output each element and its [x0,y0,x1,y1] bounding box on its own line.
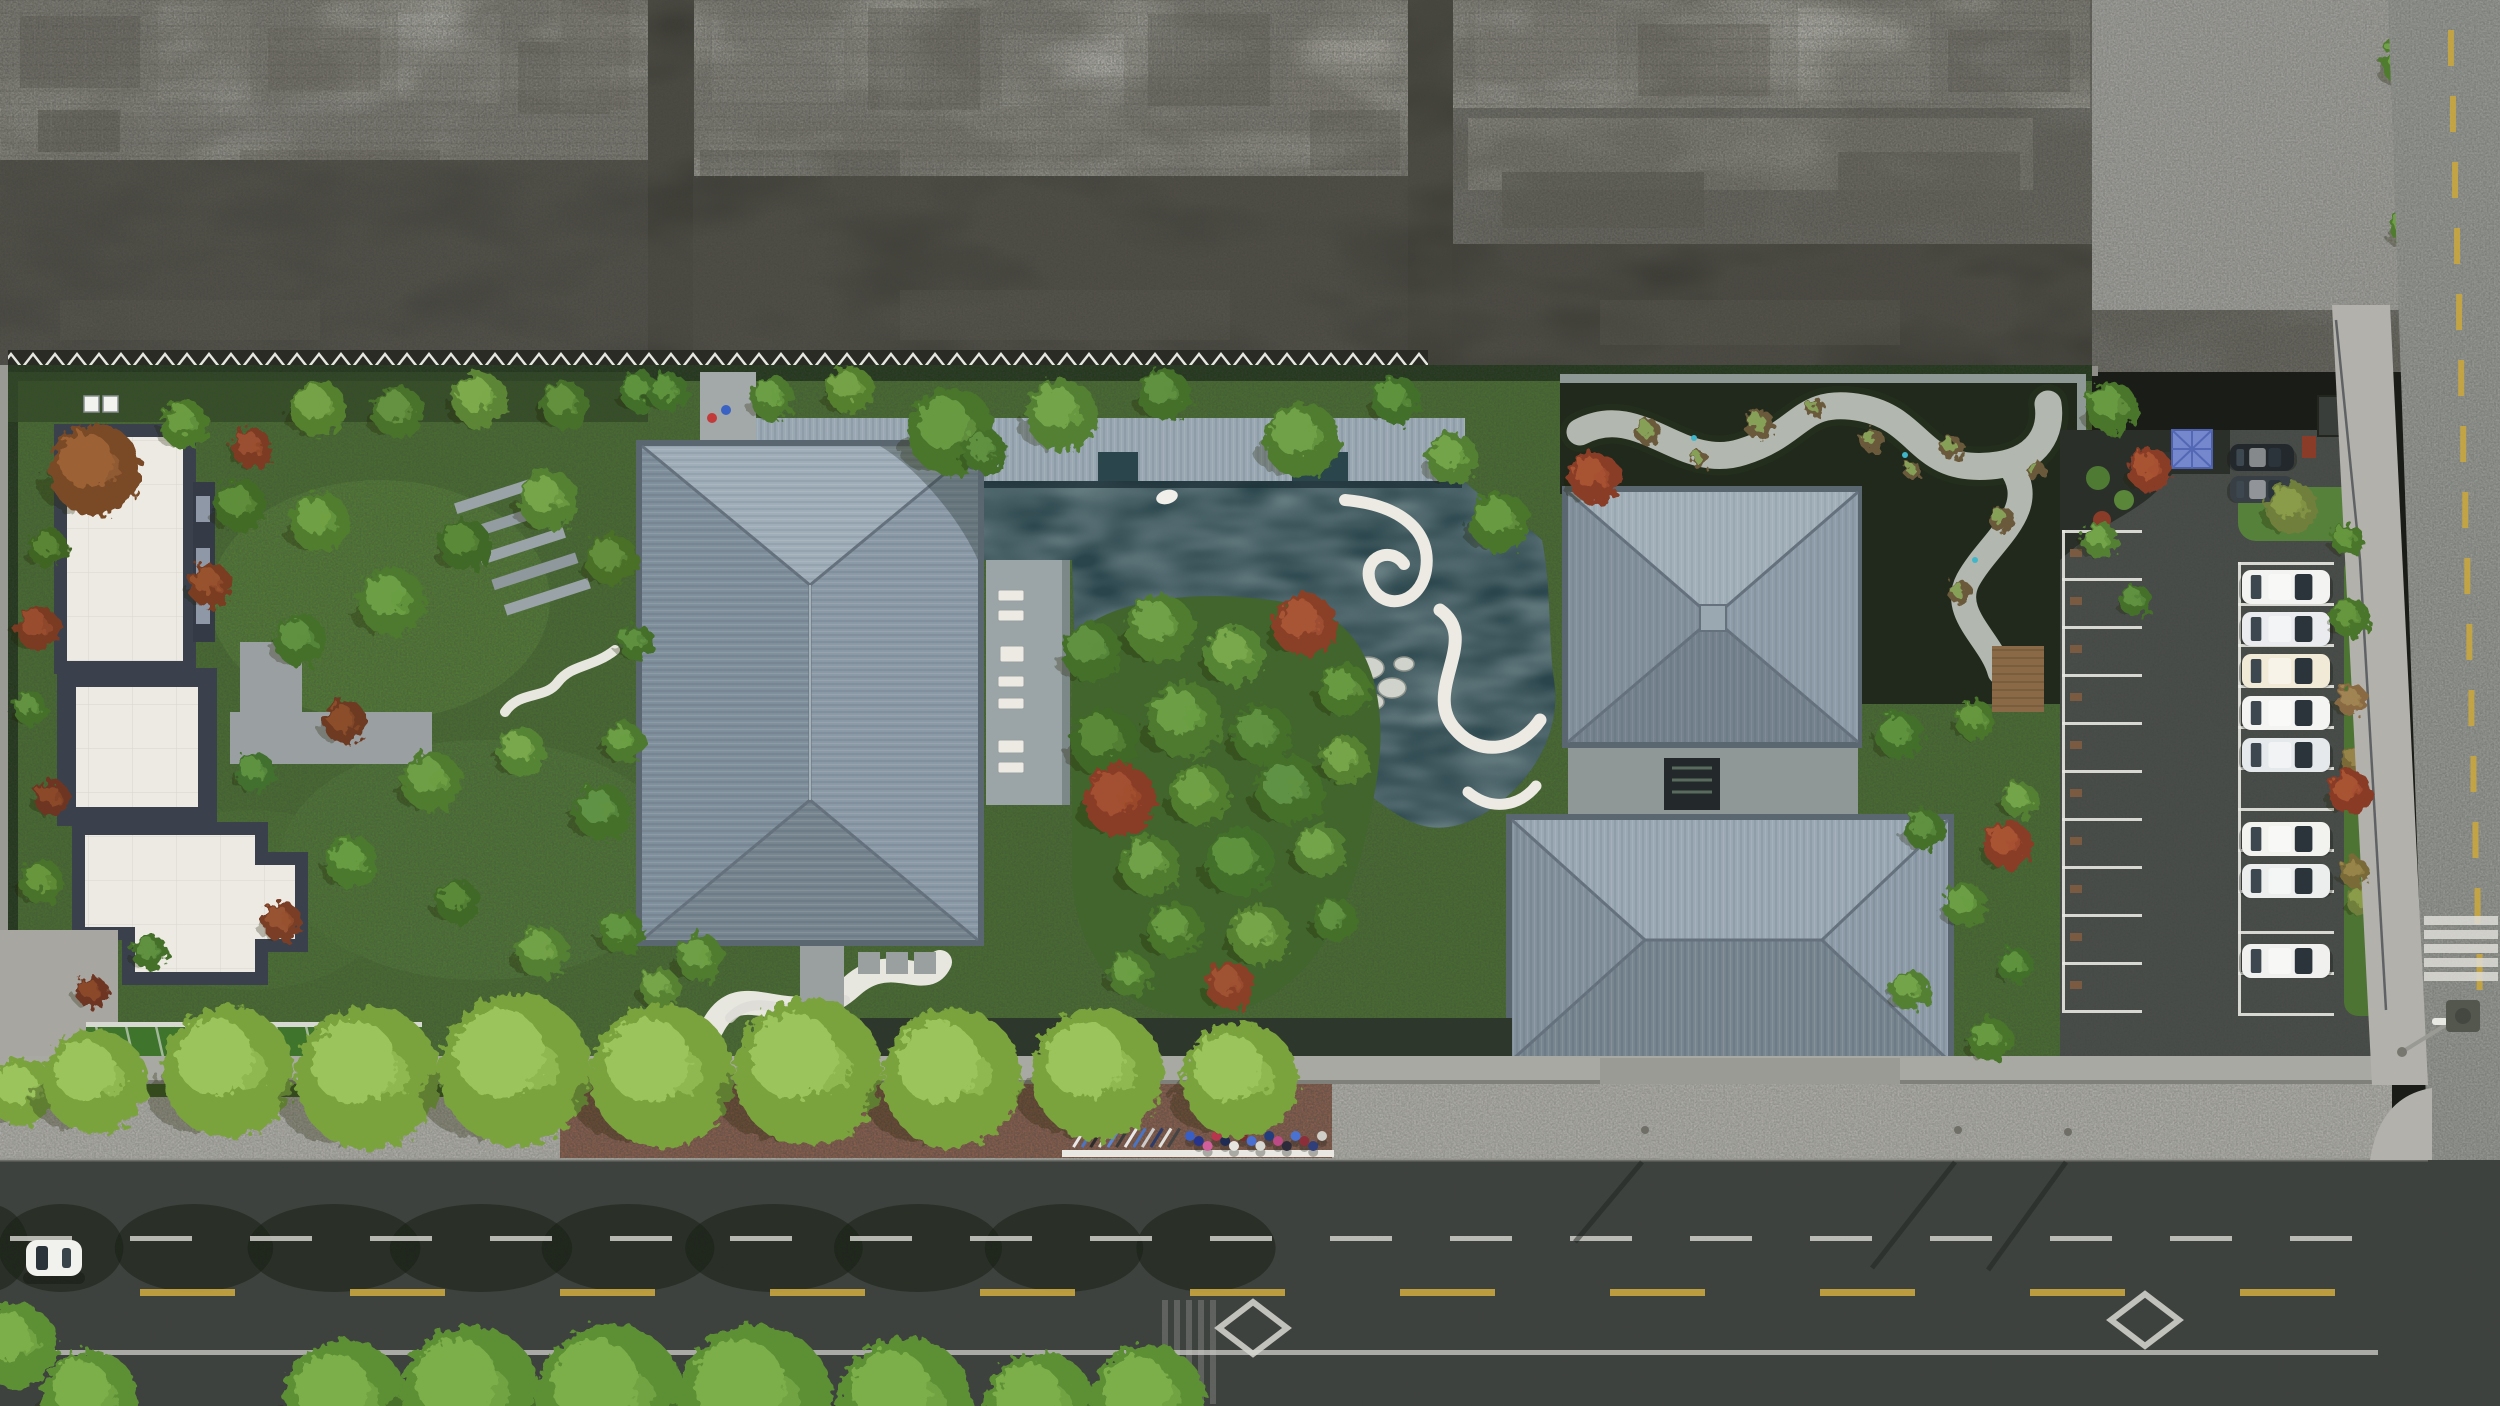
street-car-white [23,1240,85,1284]
zen-blue-accent [1972,557,1978,563]
person [721,405,731,415]
zen-tree [1940,436,1964,460]
center-dash-yellow [2458,360,2464,396]
zen-tree [1903,461,1921,479]
stall-line [2062,626,2142,629]
lane-dash-white [130,1236,192,1241]
crosswalk-stripe [2424,972,2498,981]
zen-tree [1860,428,1884,452]
zen-wall-top [1560,374,2085,383]
center-dash-yellow [1610,1289,1705,1296]
car-roof [2268,616,2291,642]
plaza-pad [914,952,936,974]
stall-line [2238,931,2334,934]
car-roof [2268,868,2291,894]
zen-tree [1805,398,1825,418]
construction-site [0,0,2500,376]
car-windshield [36,1246,48,1270]
center-dash-yellow [140,1289,235,1296]
car-roof [2249,480,2266,499]
lane-dash-white [250,1236,312,1241]
person [1185,1131,1195,1141]
lane-dash-white [1090,1236,1152,1241]
plaza-pad [886,952,908,974]
street-lamp-base [2397,1047,2407,1057]
center-dash-yellow [770,1289,865,1296]
lane-dash-white [1810,1236,1872,1241]
kiosk-red-bush [2302,436,2316,458]
crosswalk-stripe [2424,958,2498,967]
person [1229,1141,1239,1151]
boulder [1394,657,1414,671]
center-dash-yellow [980,1289,1075,1296]
pergola-notch [1098,452,1138,481]
car-windshield [2295,658,2313,684]
wheel-stop [2070,837,2082,845]
rooftop-ac-unit [84,396,99,412]
stall-line [2238,1013,2334,1016]
person [1308,1141,1318,1151]
person [1273,1136,1283,1146]
zen-tree [2025,460,2045,480]
pavilion-3-hip-roof [1506,814,1954,1084]
worn-stripe [1210,1300,1216,1404]
car-windshield [2295,868,2313,894]
tree-shadow [1136,1204,1275,1292]
car-roof [2268,658,2291,684]
boulder [1378,678,1406,698]
tree-shadow [985,1204,1143,1292]
wheel-stop [2070,885,2082,893]
deck-bench [998,610,1024,621]
crosswalk-stripe [2424,944,2498,953]
car-roof [2268,574,2291,600]
lane-dash-white [2290,1236,2352,1241]
person [1282,1141,1292,1151]
zen-tree [1948,580,1972,604]
car-body [26,1240,82,1276]
stall-line [2062,962,2142,965]
zen-tree [1989,507,2015,533]
center-dash-yellow [2448,30,2454,66]
wheel-stop [2070,597,2082,605]
tree-shadows-on-road [0,1204,1276,1292]
car-rear-glass [2236,449,2244,466]
center-dash-yellow [2452,162,2458,198]
street-lamp-head [2432,1018,2448,1025]
lane-dash-white [1210,1236,1272,1241]
car-roof [2268,948,2291,974]
car-windshield [2295,700,2313,726]
car-rear-glass [2251,659,2262,683]
stall-line [2062,818,2142,821]
lane-dash-white [490,1236,552,1241]
stall-line [2062,770,2142,773]
center-dash-yellow [2466,624,2472,660]
lane-dash-white [850,1236,912,1241]
person [1255,1141,1265,1151]
stall-line [2062,866,2142,869]
person [1194,1136,1204,1146]
lane-dash-white [730,1236,792,1241]
lane-dash-white [2170,1236,2232,1241]
center-dash-yellow [2456,294,2462,330]
tree-shadow [834,1204,1002,1292]
wheel-stop [2070,645,2082,653]
center-dash-yellow [2470,756,2476,792]
person [1264,1131,1274,1141]
car-rear-glass [2251,869,2262,893]
deck-benches [998,590,1024,773]
deck-bench [998,698,1024,709]
person [707,413,717,423]
car-windshield [2295,574,2313,600]
deck-bench [998,590,1024,601]
rooftop-ac-unit [103,396,118,412]
center-dash-yellow [2473,822,2479,858]
lamp-pole [2064,1128,2072,1136]
terrace-art-square [1664,758,1720,810]
lamp-pole [1954,1126,1962,1134]
bed-mound [2114,490,2134,510]
person [1299,1136,1309,1146]
stall-line [2238,808,2334,811]
roof-apex-cap [1700,605,1726,631]
car-windshield [2295,826,2313,852]
zen-blue-accent [1902,452,1908,458]
center-dash-yellow [2450,96,2456,132]
center-dash-yellow [350,1289,445,1296]
center-dash-yellow [2462,492,2468,528]
zen-tree [1635,419,1661,445]
deck-bench [998,740,1024,753]
car-roof [2268,826,2291,852]
pavilion-1-hip-roof [636,440,984,946]
car-rear-glass [62,1248,71,1268]
utility-box-lid [2455,1008,2471,1024]
person [1291,1131,1301,1141]
car-rear-glass [2251,701,2262,725]
wheel-stop [2070,789,2082,797]
zen-blue-accent [1691,435,1697,441]
center-dash-yellow [1400,1289,1495,1296]
plaza-pad [858,952,880,974]
wheel-stop [2070,981,2082,989]
zen-tree [1745,410,1775,440]
lane-dash-white [1930,1236,1992,1241]
stall-line [2062,914,2142,917]
pavilion-2-pyramid-roof [1562,486,1862,820]
lane-dash-white [370,1236,432,1241]
car-windshield [2295,948,2313,974]
stall-line [2062,578,2142,581]
wood-deck-planks [1992,646,2044,712]
deck-bench [1000,646,1024,662]
car-windshield [2295,742,2313,768]
car-windshield [2295,616,2313,642]
deck-edge-shadow [1062,560,1070,805]
center-dash-yellow [2464,558,2470,594]
deck-bench [998,676,1024,687]
stall-line [2062,722,2142,725]
zen-tree [1691,451,1709,469]
car-rear-glass [2251,743,2262,767]
car-rear-glass [2251,617,2262,641]
car-rear-glass [2251,827,2262,851]
person [1220,1136,1230,1146]
car-roof [2268,742,2291,768]
center-dash-yellow [2454,228,2460,264]
stall-line [2062,674,2142,677]
stall-line [2062,1010,2142,1013]
crosswalk-stripe [2424,916,2498,925]
aerial-photo-stage: Aerial drone view of a landscaped show-g… [0,0,2500,1406]
wing-skylight [196,496,210,522]
center-dash-yellow [2030,1289,2125,1296]
wheel-stop [2070,933,2082,941]
car-rear-glass [2251,575,2262,599]
person [1317,1131,1327,1141]
center-dash-yellow [2468,690,2474,726]
center-dash-yellow [1190,1289,1285,1296]
car-rear-glass [2251,949,2262,973]
bed-mound [2086,466,2110,490]
lane-dash-white [1450,1236,1512,1241]
lane-dash-white [2050,1236,2112,1241]
canopy-ribs [2172,430,2212,468]
lane-dash-white [1330,1236,1392,1241]
wheel-stop [2070,693,2082,701]
street-tree-row [0,994,1298,1150]
person [1247,1136,1257,1146]
lane-dash-white [610,1236,672,1241]
lane-dash-white [970,1236,1032,1241]
car-windshield [2268,448,2281,467]
person [1203,1141,1213,1151]
car-roof [2249,448,2266,467]
wheel-stop [2070,741,2082,749]
center-dash-yellow [2460,426,2466,462]
deck-bench [998,762,1024,773]
lane-dash-white [1690,1236,1752,1241]
center-dash-yellow [560,1289,655,1296]
car-roof [2268,700,2291,726]
lamp-pole [1641,1126,1649,1134]
crosswalk-stripe [2424,930,2498,939]
building-b-roof-joints [76,687,198,807]
aerial-photo: Aerial drone view of a landscaped show-g… [0,0,2500,1406]
center-dash-yellow [2240,1289,2335,1296]
stall-line [2238,562,2334,565]
center-dash-yellow [1820,1289,1915,1296]
car-rear-glass [2236,481,2244,498]
